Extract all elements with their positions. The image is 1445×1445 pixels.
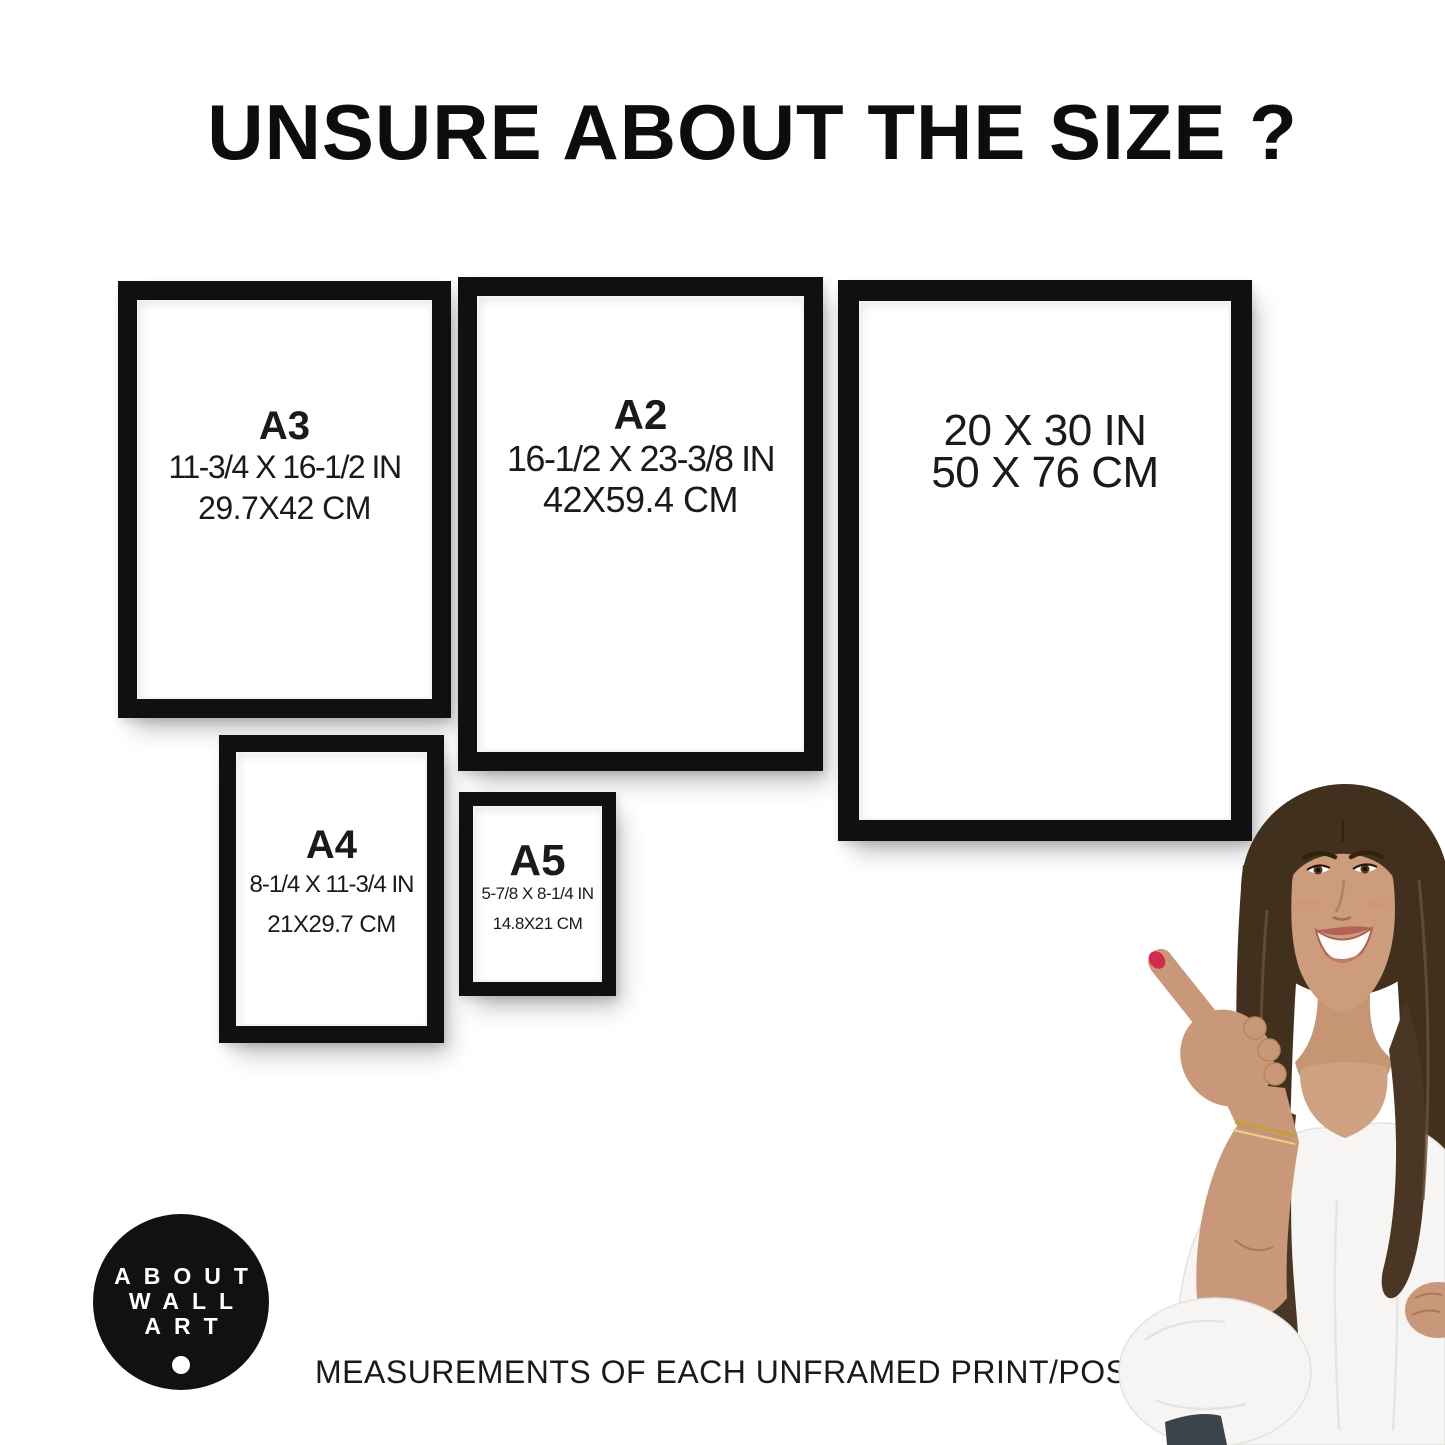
brand-logo-dot-icon — [172, 1356, 190, 1374]
brand-logo-line3: ART — [93, 1314, 269, 1339]
frame-a5-inches: 5-7/8 X 8-1/4 IN — [473, 883, 602, 905]
frame-a4-inches: 8-1/4 X 11-3/4 IN — [236, 871, 427, 899]
frame-a3-inches: 11-3/4 X 16-1/2 IN — [137, 447, 432, 488]
frame-a2-label: A2 — [477, 392, 804, 438]
woman-pointing-photo — [1085, 770, 1445, 1445]
frame-a5: A5 5-7/8 X 8-1/4 IN 14.8X21 CM — [459, 792, 616, 996]
frame-a5-label: A5 — [473, 843, 602, 879]
frame-a2-text: A2 16-1/2 X 23-3/8 IN 42X59.4 CM — [477, 392, 804, 520]
frame-20x30: 20 X 30 IN 50 X 76 CM — [838, 280, 1252, 841]
frame-a2-mat — [477, 296, 804, 752]
frame-20x30-mat — [859, 301, 1231, 820]
frame-20x30-inches: 20 X 30 IN — [859, 410, 1231, 452]
frame-a2: A2 16-1/2 X 23-3/8 IN 42X59.4 CM — [458, 277, 823, 771]
frame-a4: A4 8-1/4 X 11-3/4 IN 21X29.7 CM — [219, 735, 444, 1043]
frame-a3-label: A3 — [137, 405, 432, 447]
frame-a2-cm: 42X59.4 CM — [477, 479, 804, 520]
frame-a4-text: A4 8-1/4 X 11-3/4 IN 21X29.7 CM — [236, 823, 427, 939]
size-guide-infographic: UNSURE ABOUT THE SIZE ? A3 11-3/4 X 16-1… — [0, 0, 1445, 1445]
caption: MEASUREMENTS OF EACH UNFRAMED PRINT/POST… — [315, 1353, 1193, 1391]
frame-a5-cm: 14.8X21 CM — [473, 913, 602, 935]
page-title: UNSURE ABOUT THE SIZE ? — [60, 86, 1445, 178]
frame-a3-cm: 29.7X42 CM — [137, 488, 432, 529]
frame-a2-inches: 16-1/2 X 23-3/8 IN — [477, 438, 804, 479]
frame-a5-text: A5 5-7/8 X 8-1/4 IN 14.8X21 CM — [473, 843, 602, 935]
frame-a4-cm: 21X29.7 CM — [236, 911, 427, 939]
brand-logo-text: ABOUT WALL ART — [93, 1264, 269, 1339]
frame-20x30-text: 20 X 30 IN 50 X 76 CM — [859, 410, 1231, 494]
brand-logo-line1: ABOUT — [93, 1264, 269, 1289]
frame-a3: A3 11-3/4 X 16-1/2 IN 29.7X42 CM — [118, 281, 451, 718]
frame-a3-text: A3 11-3/4 X 16-1/2 IN 29.7X42 CM — [137, 405, 432, 529]
frame-a4-label: A4 — [236, 823, 427, 867]
frame-20x30-cm: 50 X 76 CM — [859, 452, 1231, 494]
brand-logo: ABOUT WALL ART — [93, 1214, 269, 1390]
brand-logo-line2: WALL — [93, 1289, 269, 1314]
